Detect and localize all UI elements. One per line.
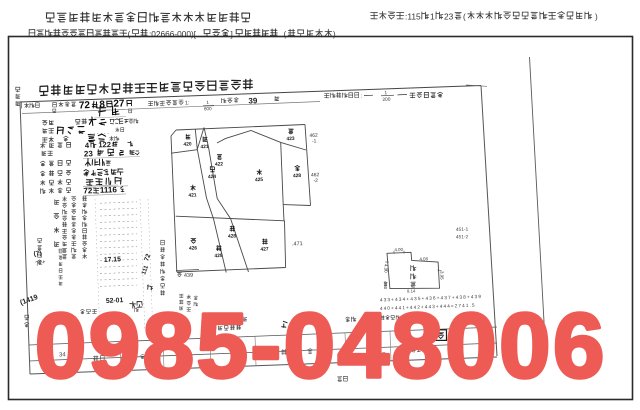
svg-text:427: 427 [260,246,269,252]
svg-text:428: 428 [228,233,237,239]
svg-text:(: ( [284,30,287,39]
svg-text:428: 428 [293,173,302,179]
svg-text:451-2: 451-2 [456,234,469,240]
svg-text:1: 1 [430,11,435,21]
svg-text:(: ( [128,30,131,39]
svg-text:429: 429 [214,253,223,259]
svg-text:23: 23 [444,11,454,21]
svg-text:72: 72 [79,100,91,111]
svg-text:27: 27 [113,98,125,109]
svg-text:424: 424 [208,174,217,180]
svg-text:): ) [333,30,336,39]
svg-text:439: 439 [184,273,193,279]
svg-text:451-1: 451-1 [456,227,469,233]
svg-text:): ) [595,12,598,21]
svg-text:600: 600 [204,106,212,111]
svg-text:4.08: 4.08 [419,256,428,261]
svg-text:72: 72 [83,186,93,195]
svg-text:421: 421 [188,192,197,198]
svg-text::115: :115 [405,11,421,21]
svg-text:-2: -2 [313,178,318,184]
svg-text:0985-048006: 0985-048006 [35,295,607,397]
svg-text:17.15: 17.15 [104,256,122,264]
svg-text:422: 422 [215,161,224,167]
svg-text:39: 39 [248,96,258,105]
svg-text:1116: 1116 [100,185,118,195]
svg-text:423: 423 [286,136,295,142]
svg-text:420: 420 [183,141,192,147]
svg-text:.471: .471 [292,241,303,247]
svg-text:426: 426 [189,245,198,251]
svg-text:4.00: 4.00 [394,247,403,252]
svg-text:23: 23 [84,149,94,158]
svg-text:1:: 1: [185,100,190,106]
svg-text:4.10: 4.10 [384,264,389,273]
svg-text:425: 425 [255,177,264,183]
svg-text:-1: -1 [312,138,317,144]
svg-text:3.95: 3.95 [440,271,445,280]
svg-text:122: 122 [98,140,111,149]
svg-text:(: ( [463,12,466,21]
svg-text:200: 200 [382,97,391,103]
svg-text:421: 421 [200,144,209,150]
svg-text:8.14: 8.14 [407,288,416,293]
